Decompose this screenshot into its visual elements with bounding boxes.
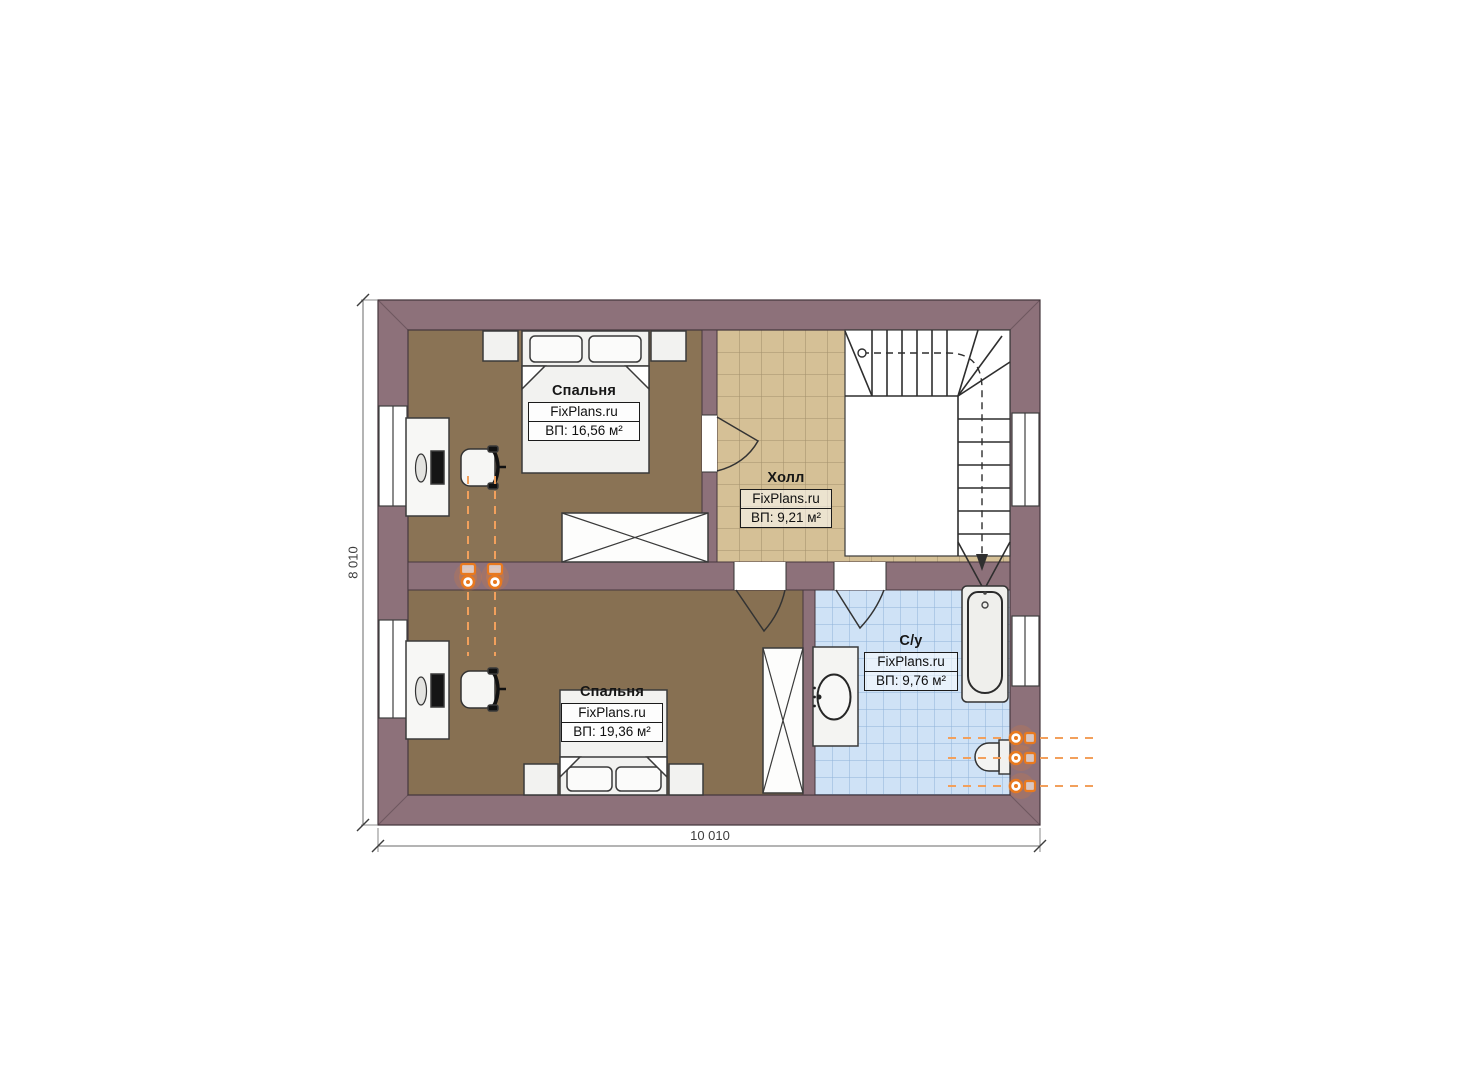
desk-computer: [406, 641, 449, 739]
wardrobe: [763, 648, 803, 793]
nightstand: [524, 764, 558, 795]
window-bathroom: [1012, 616, 1039, 686]
room-name: С/у: [864, 633, 958, 649]
room-name: Спальня: [528, 383, 640, 399]
window-bedroom-2: [379, 620, 407, 718]
room-area-value: ВП: 19,36 м²: [562, 723, 662, 741]
room-info-box: FixPlans.ru ВП: 16,56 м²: [528, 402, 640, 441]
brand-watermark: FixPlans.ru: [865, 653, 957, 672]
room-label-bedroom-2: Спальня FixPlans.ru ВП: 19,36 м²: [561, 684, 663, 742]
room-area-value: ВП: 16,56 м²: [529, 422, 639, 440]
window-bedroom-1: [379, 406, 407, 506]
sink-vanity: [813, 647, 858, 746]
nightstand: [651, 331, 686, 361]
floor-plan-canvas: Спальня FixPlans.ru ВП: 16,56 м² Холл Fi…: [0, 0, 1473, 1080]
floor-plan-drawing: [0, 0, 1473, 1080]
room-label-bathroom: С/у FixPlans.ru ВП: 9,76 м²: [864, 633, 958, 691]
room-area-value: ВП: 9,21 м²: [741, 509, 831, 527]
desk-computer: [406, 418, 449, 516]
heating-riser-symbol: [454, 563, 482, 591]
dimension-height-label: 8 010: [346, 532, 361, 594]
bathtub: [962, 586, 1008, 702]
room-name: Спальня: [561, 684, 663, 700]
room-area-value: ВП: 9,76 м²: [865, 672, 957, 690]
room-label-hall: Холл FixPlans.ru ВП: 9,21 м²: [740, 470, 832, 528]
room-info-box: FixPlans.ru ВП: 9,76 м²: [864, 652, 958, 691]
wardrobe: [562, 513, 708, 562]
nightstand: [669, 764, 703, 795]
stairwell: [845, 330, 1010, 556]
brand-watermark: FixPlans.ru: [562, 704, 662, 723]
heating-riser-symbol: [481, 563, 509, 591]
nightstand: [483, 331, 518, 361]
window-stairs: [1012, 413, 1039, 506]
room-label-bedroom-1: Спальня FixPlans.ru ВП: 16,56 м²: [528, 383, 640, 441]
stairs: [845, 330, 1010, 590]
dimension-width-label: 10 010: [679, 828, 741, 843]
brand-watermark: FixPlans.ru: [529, 403, 639, 422]
room-name: Холл: [740, 470, 832, 486]
room-info-box: FixPlans.ru ВП: 19,36 м²: [561, 703, 663, 742]
room-info-box: FixPlans.ru ВП: 9,21 м²: [740, 489, 832, 528]
brand-watermark: FixPlans.ru: [741, 490, 831, 509]
